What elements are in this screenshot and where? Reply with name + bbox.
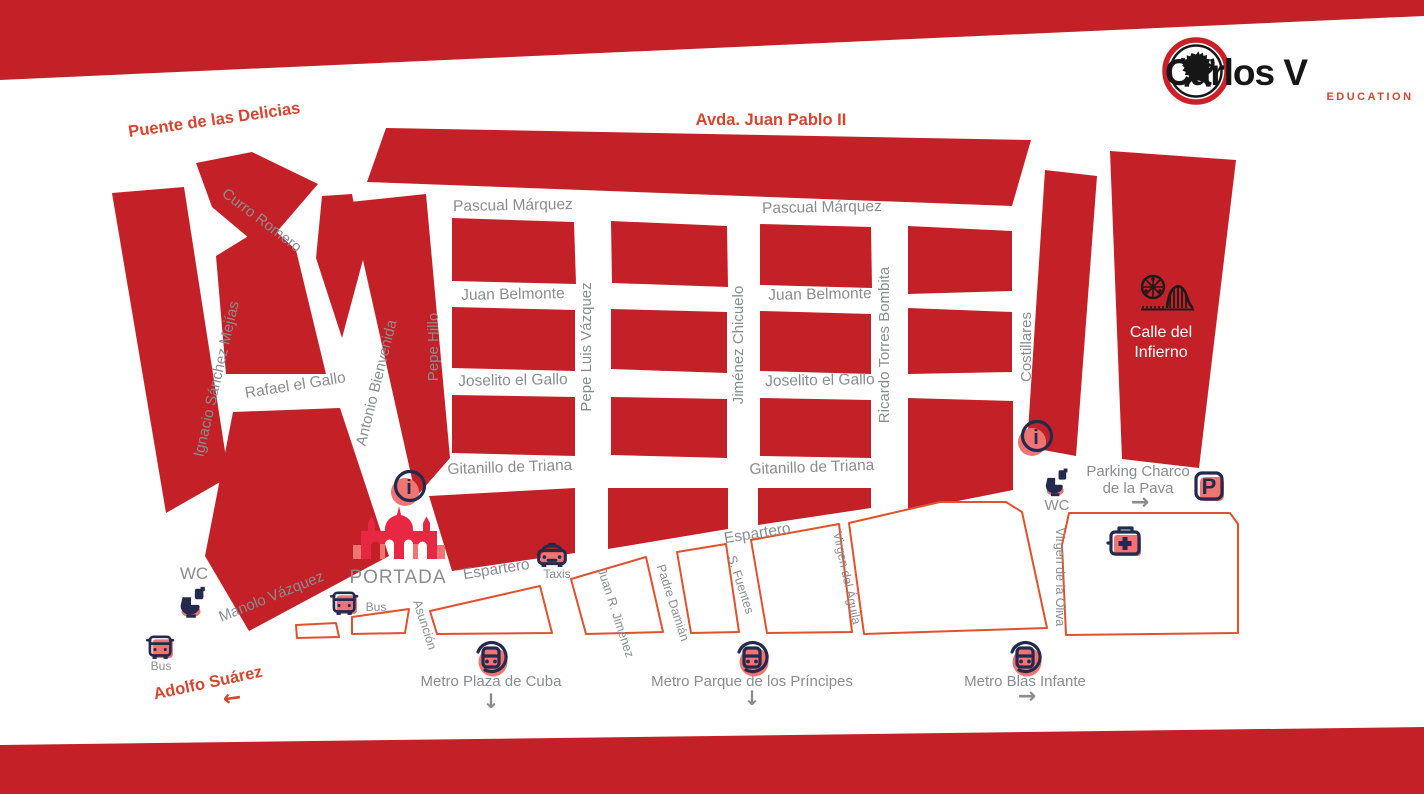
city-block [611,397,727,458]
label-ricardo-torres-bombita: Ricardo Torres Bombita [876,266,893,423]
city-block [1027,170,1097,456]
label-bus-2: Bus [366,600,387,614]
label-juan-belmonte-2: Juan Belmonte [768,285,872,304]
bus-icon [331,593,357,615]
city-block [608,488,728,549]
label-bus-1: Bus [151,659,172,673]
outlined-block [849,502,1047,634]
label-gitanillo-de-triana-1: Gitanillo de Triana [447,457,573,478]
city-block [216,224,326,374]
wc-icon [1046,469,1068,497]
metro-icon [478,643,508,677]
city-block [760,398,871,458]
label-jimenez-chicuelo: Jiménez Chicuelo [730,286,747,404]
label-wc-2: WC [1045,497,1070,514]
metro-icon [739,643,769,677]
city-block [908,308,1012,374]
label-parking-charco-1: Parking Charco [1086,463,1189,480]
label-joselito-el-gallo-2: Joselito el Gallo [765,371,875,390]
label-taxis: Taxis [543,567,570,581]
label-gitanillo-de-triana-2: Gitanillo de Triana [749,457,875,478]
label-parking-arrow: → [1131,490,1149,515]
band-bottom [0,727,1424,794]
city-block [760,311,871,374]
label-calle-infierno-1: Calle del [1130,324,1192,341]
bus-icon [147,637,173,659]
label-virgen-de-la-oliva: Virgen de la Oliva [1053,528,1067,626]
label-pepe-hillo: Pepe Hillo [425,313,442,381]
parking-icon [1196,473,1224,501]
label-metro-blas-arrow: → [1018,684,1036,709]
outlined-block [296,623,339,638]
outlined-block [1062,513,1238,635]
city-block [112,187,229,513]
label-costillares: Costillares [1018,312,1035,382]
wc-icon [181,587,205,618]
city-block [611,221,728,287]
city-block [758,488,871,525]
label-pepe-luis-vazquez: Pepe Luis Vázquez [578,282,595,411]
label-pascual-marquez-2: Pascual Márquez [762,198,882,217]
feria-map: i [0,0,1424,794]
label-juan-belmonte-1: Juan Belmonte [461,285,565,304]
city-block [908,398,1013,511]
label-adolfo-arrow: ← [221,685,243,712]
metro-icon [1012,643,1042,677]
city-block [760,224,872,288]
avenue-band [367,128,1031,206]
label-rafael-el-gallo: Rafael el Gallo [244,369,347,402]
city-block [908,226,1012,294]
city-block [452,218,576,284]
label-calle-infierno-2: Infierno [1134,344,1187,361]
label-portada: PORTADA [349,567,446,588]
label-pascual-marquez-1: Pascual Márquez [453,196,573,215]
label-avda-juan-pablo-ii: Avda. Juan Pablo II [696,111,847,129]
outlined-block [430,586,552,634]
city-block [611,309,727,373]
label-metro-plaza-arrow: ↓ [483,689,500,713]
label-metro-parque-arrow: ↓ [744,686,761,710]
label-joselito-el-gallo-1: Joselito el Gallo [458,371,568,390]
brand-tagline: EDUCATION [1326,91,1413,103]
brand-logo: Carlos V EDUCATION [1158,33,1414,109]
label-puente-de-las-delicias: Puente de las Delicias [127,99,301,141]
city-block [452,395,575,456]
city-block [452,307,575,371]
label-wc-1: WC [180,564,208,583]
brand-name: Carlos V [1165,52,1308,93]
